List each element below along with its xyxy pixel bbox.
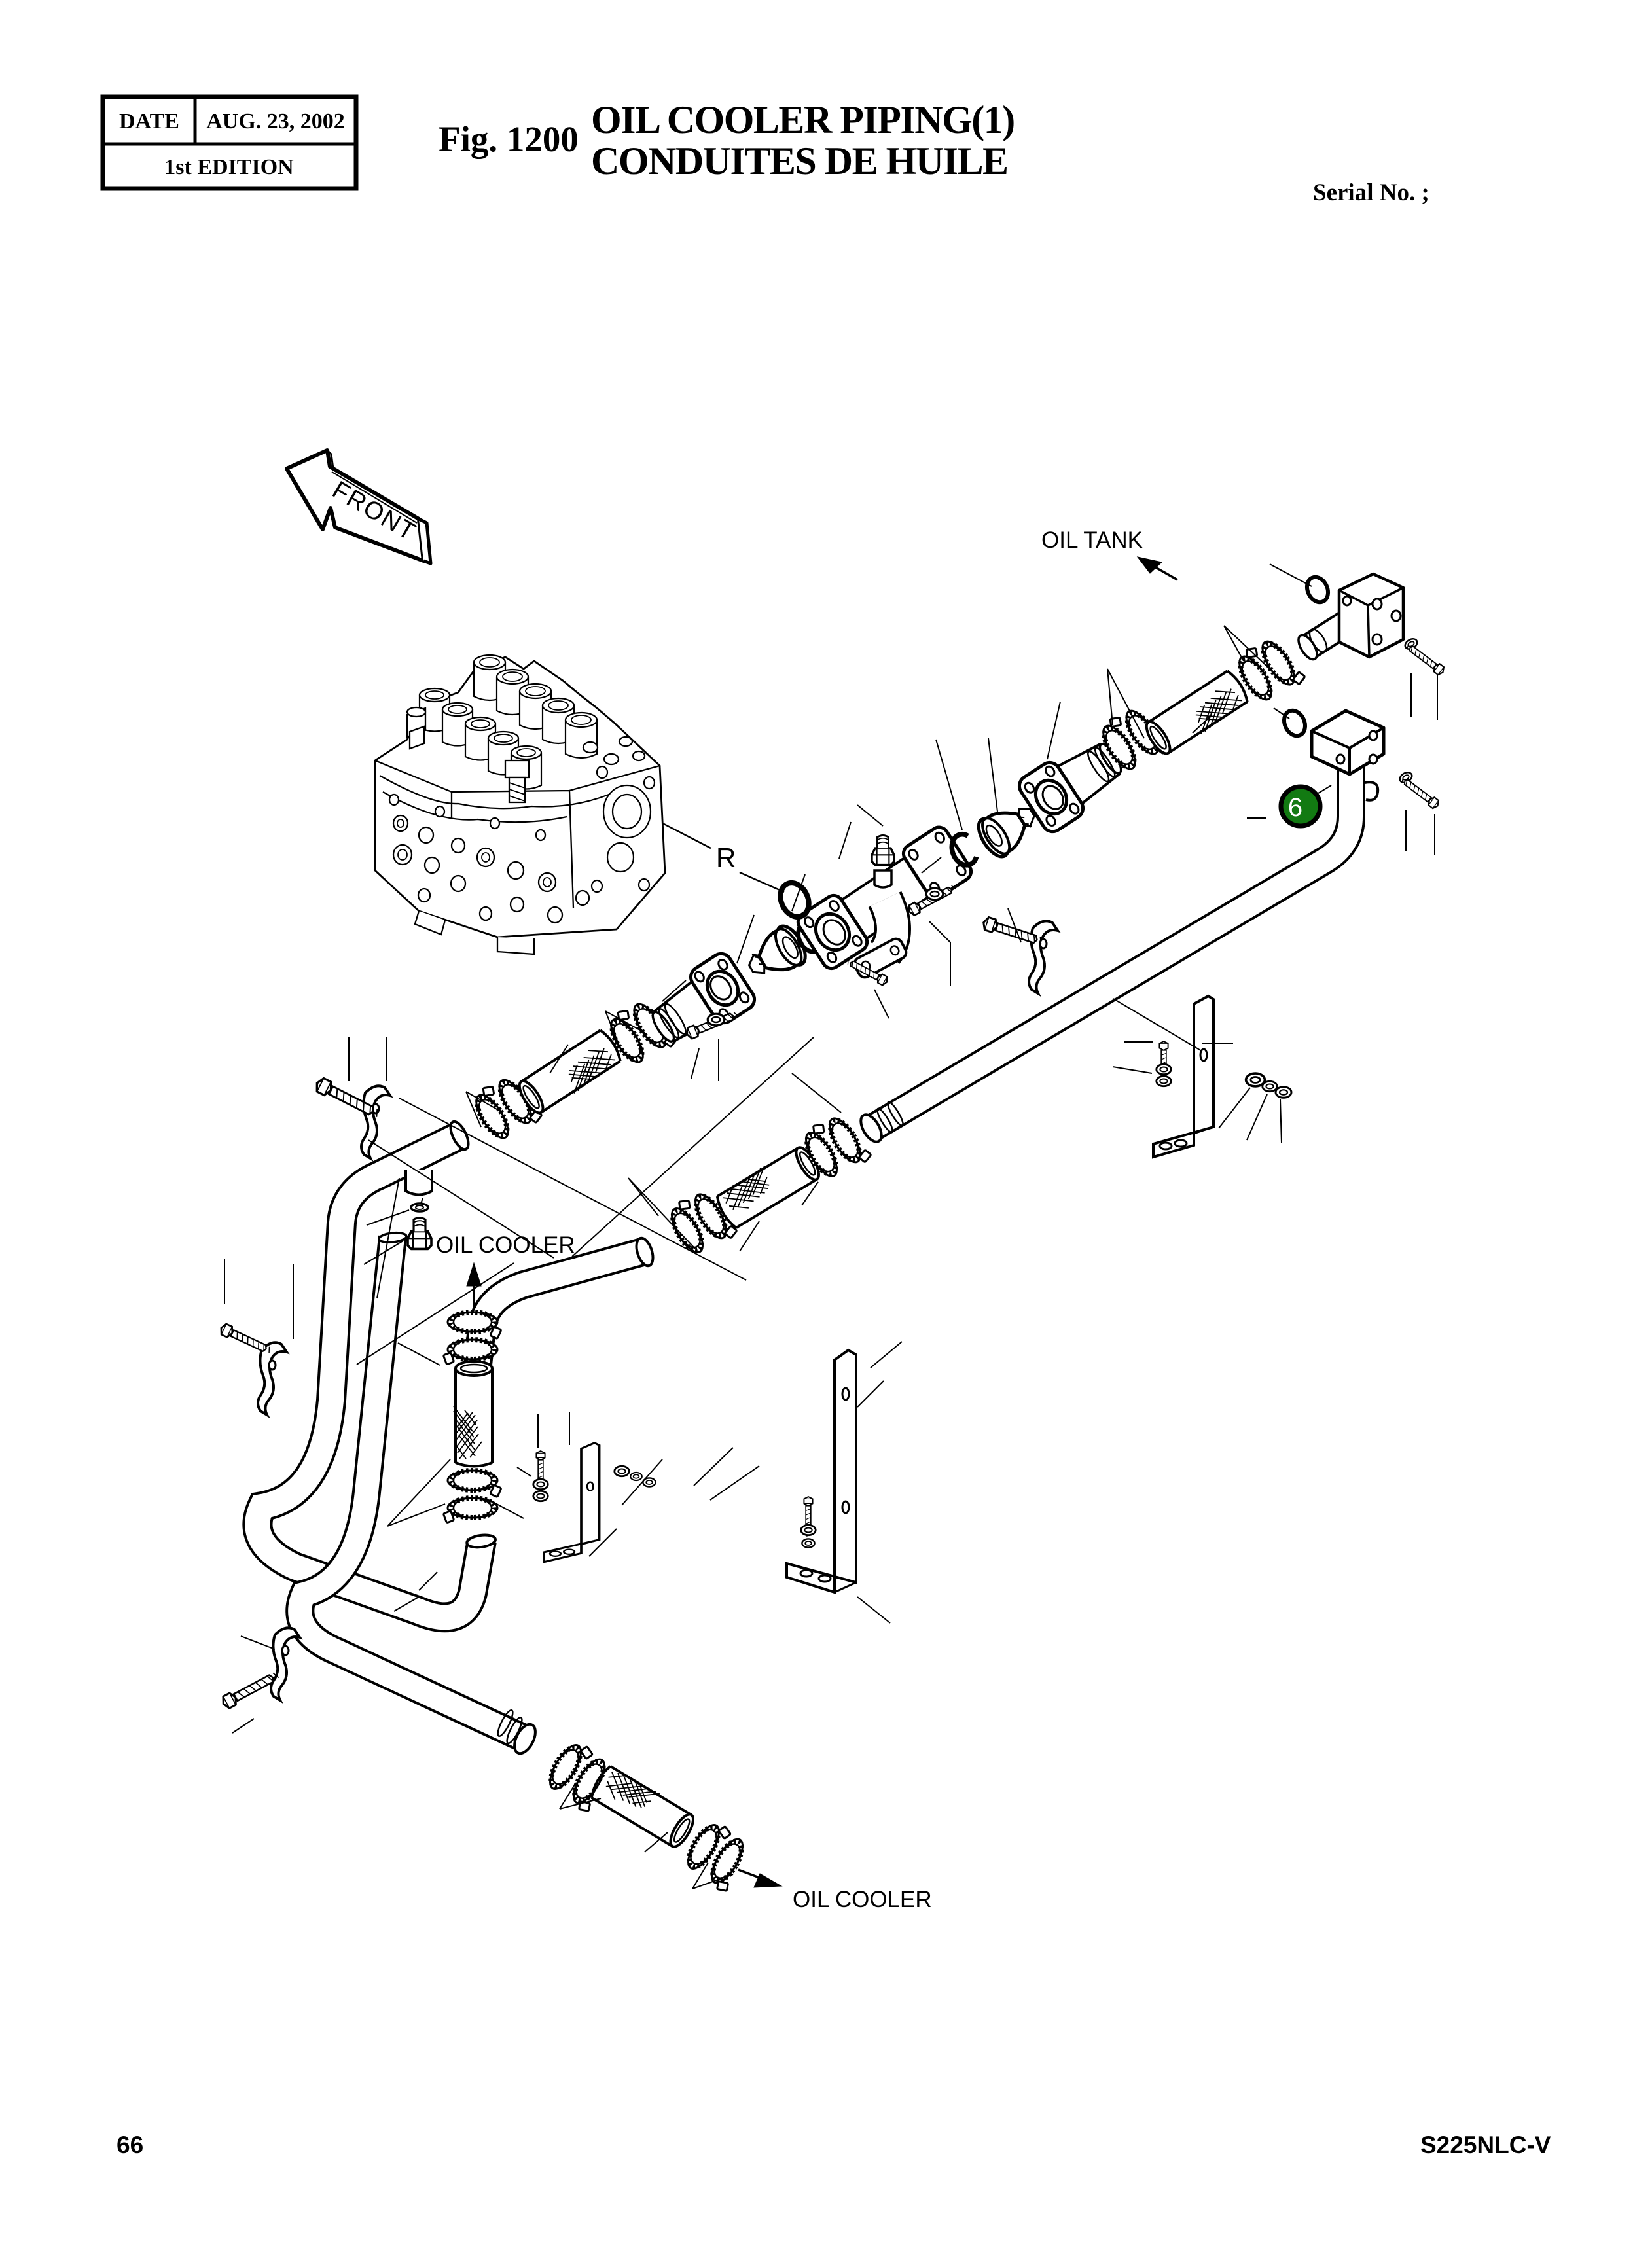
svg-text:OIL COOLER PIPING(1): OIL COOLER PIPING(1): [591, 98, 1015, 141]
svg-text:AUG. 23, 2002: AUG. 23, 2002: [206, 109, 345, 134]
svg-text:66: 66: [117, 2132, 143, 2158]
svg-text:Fig. 1200: Fig. 1200: [439, 119, 579, 159]
svg-text:CONDUITES DE HUILE: CONDUITES DE HUILE: [591, 139, 1008, 183]
svg-text:S225NLC-V: S225NLC-V: [1420, 2132, 1551, 2158]
svg-text:OIL COOLER: OIL COOLER: [793, 1887, 932, 1912]
svg-text:Serial No. ;: Serial No. ;: [1313, 179, 1429, 206]
svg-text:DATE: DATE: [119, 109, 179, 134]
svg-text:1st EDITION: 1st EDITION: [164, 155, 294, 179]
svg-text:R: R: [716, 842, 736, 873]
svg-text:OIL COOLER: OIL COOLER: [436, 1232, 575, 1258]
svg-text:OIL TANK: OIL TANK: [1041, 527, 1143, 553]
svg-text:6: 6: [1288, 793, 1302, 822]
